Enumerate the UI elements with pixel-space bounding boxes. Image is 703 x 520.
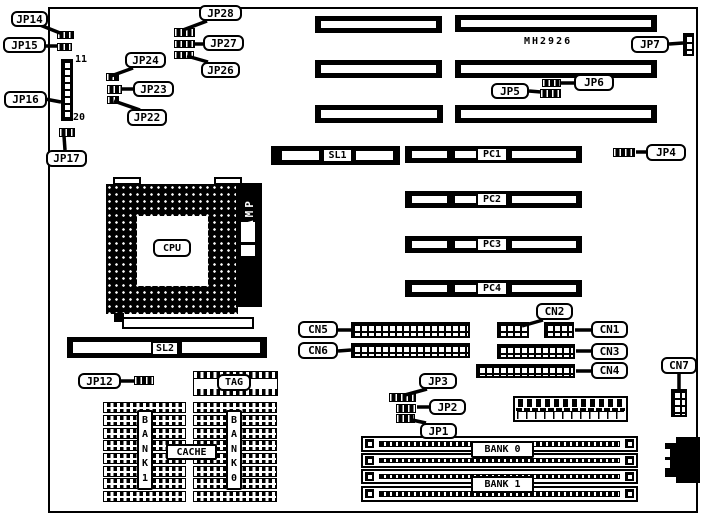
jp27-jumper <box>174 40 195 48</box>
tag-label: TAG <box>217 374 251 391</box>
jp15-label: JP15 <box>3 37 46 53</box>
jp17-label: JP17 <box>46 150 87 167</box>
board-marking: MH2926 <box>524 36 572 47</box>
cn2-label: CN2 <box>536 303 573 320</box>
jp22-label: JP22 <box>127 109 167 126</box>
isa-slot-2 <box>315 60 442 78</box>
pc3-contact-strip <box>455 241 476 248</box>
cn4-pin-header <box>476 364 575 378</box>
keyboard-connector <box>676 437 700 483</box>
isa-slot-1 <box>315 16 442 33</box>
jp14-label: JP14 <box>11 11 48 27</box>
simm-latch-left <box>365 456 374 465</box>
jp1-label: JP1 <box>420 423 457 439</box>
jp12-jumper <box>134 376 154 385</box>
cn7-pin-header <box>671 389 687 417</box>
bank0-vertical-label: B A N K 0 <box>226 410 242 490</box>
cn3-pin-header <box>497 344 575 359</box>
jp1-jumper <box>396 414 415 423</box>
jp5-label: JP5 <box>491 83 529 99</box>
motherboard-diagram: MH2926 AMPJP14JP15JP16JP17JP24JP23JP22JP… <box>0 0 703 520</box>
cn5-pin-header <box>351 322 470 338</box>
cn2-pin-header <box>497 322 529 338</box>
pc4-contact-strip <box>412 285 447 292</box>
pin-11-label: 11 <box>75 54 89 66</box>
sl2-contact-strip <box>182 342 260 353</box>
simm-latch-right <box>625 439 634 448</box>
jp3-jumper <box>389 393 416 402</box>
jp23-jumper <box>107 85 122 94</box>
cn5-label: CN5 <box>298 321 338 338</box>
power-connector <box>513 396 628 422</box>
jp28-jumper <box>174 28 195 37</box>
bank1-vertical-label: B A N K 1 <box>137 410 153 490</box>
cn1-pin-header <box>544 322 574 338</box>
pc3-contact-strip <box>512 241 576 248</box>
jp7-label: JP7 <box>631 36 669 53</box>
bank0-label: BANK 0 <box>471 441 534 458</box>
pc1-contact-strip <box>455 151 476 158</box>
jp23-label: JP23 <box>133 81 174 97</box>
cpu-bottom-bar <box>122 317 254 329</box>
pc4-label: PC4 <box>476 281 508 296</box>
simm-latch-left <box>365 472 374 481</box>
jp17-jumper <box>59 128 75 137</box>
keyboard-connector-notch <box>663 449 670 457</box>
pc4-contact-strip <box>455 285 476 292</box>
jp6-label: JP6 <box>574 74 614 91</box>
jp16-pin-header <box>61 59 73 121</box>
isa-slot-4 <box>455 15 657 32</box>
pc3-label: PC3 <box>476 237 508 252</box>
pc4-contact-strip <box>512 285 576 292</box>
jp5-jumper <box>540 89 561 98</box>
jp26-jumper <box>174 51 194 59</box>
jp14-jumper <box>57 31 74 39</box>
sl2-contact-strip <box>73 342 151 353</box>
jp7-pin-header <box>683 33 694 56</box>
cpu-socket-tab <box>113 177 141 185</box>
jp22-jumper <box>107 96 119 104</box>
cn6-pin-header <box>351 343 470 358</box>
jp28-label: JP28 <box>199 5 242 21</box>
pc2-label: PC2 <box>476 192 508 207</box>
cn1-label: CN1 <box>591 321 628 338</box>
power-connector-sockets <box>517 411 624 419</box>
pin-20-label: 20 <box>73 112 87 124</box>
jp4-label: JP4 <box>646 144 686 161</box>
jp2-jumper <box>396 404 416 413</box>
cache-label: CACHE <box>166 444 217 460</box>
cpu-label: CPU <box>153 239 191 257</box>
pc1-label: PC1 <box>476 147 508 162</box>
amp-window <box>241 222 255 242</box>
pc2-contact-strip <box>412 196 447 203</box>
jp24-label: JP24 <box>125 52 166 68</box>
sl2-label: SL2 <box>151 341 179 356</box>
pc1-contact-strip <box>512 151 576 158</box>
jp3-label: JP3 <box>419 373 457 389</box>
isa-slot-6 <box>455 105 657 123</box>
cache-chip <box>103 491 186 502</box>
keyboard-connector-notch <box>663 460 670 468</box>
cn6-label: CN6 <box>298 342 338 359</box>
jp26-label: JP26 <box>201 62 240 78</box>
jp24-jumper <box>106 73 119 81</box>
cn4-label: CN4 <box>591 362 628 379</box>
jp4-jumper <box>613 148 635 157</box>
jp16-label: JP16 <box>4 91 47 108</box>
bank1-label: BANK 1 <box>471 476 534 493</box>
simm-latch-right <box>625 472 634 481</box>
isa-slot-5 <box>455 60 657 78</box>
simm-latch-right <box>625 456 634 465</box>
sl1-contact-strip <box>282 151 319 160</box>
amp-window <box>241 245 255 256</box>
jp6-jumper <box>542 79 561 87</box>
cn7-label: CN7 <box>661 357 697 374</box>
simm-latch-right <box>625 489 634 498</box>
simm-latch-left <box>365 439 374 448</box>
cache-chip <box>193 491 277 502</box>
jp15-jumper <box>57 43 72 51</box>
sl1-contact-strip <box>356 151 393 160</box>
jp12-label: JP12 <box>78 373 121 389</box>
pc3-contact-strip <box>412 241 447 248</box>
sl1-label: SL1 <box>322 148 353 163</box>
jp27-label: JP27 <box>203 35 244 51</box>
cn3-label: CN3 <box>591 343 628 360</box>
power-connector-pins <box>518 399 623 407</box>
pc2-contact-strip <box>455 196 476 203</box>
pc2-contact-strip <box>512 196 576 203</box>
jp2-label: JP2 <box>429 399 466 415</box>
simm-latch-left <box>365 489 374 498</box>
isa-slot-3 <box>315 105 443 123</box>
simm-contacts <box>379 458 620 463</box>
pc1-contact-strip <box>412 151 447 158</box>
